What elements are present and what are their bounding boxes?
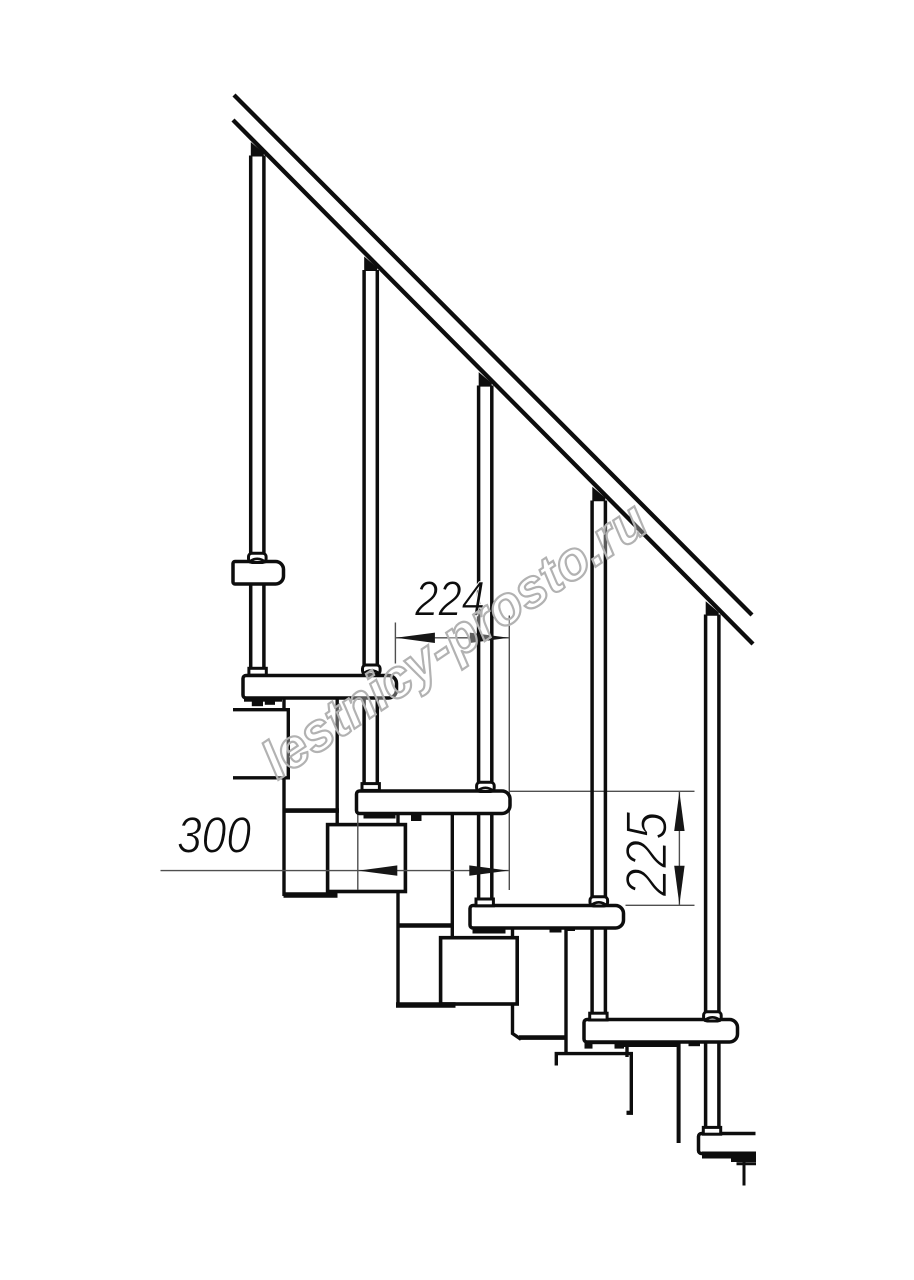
svg-text:225: 225 — [615, 811, 680, 898]
svg-text:300: 300 — [177, 807, 251, 864]
